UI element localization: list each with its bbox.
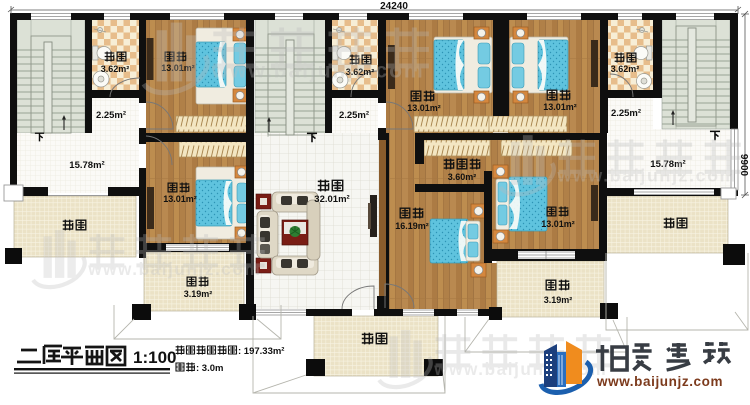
svg-text:3.62m²: 3.62m² [611,64,640,74]
svg-text:15.78m²: 15.78m² [69,160,104,171]
svg-text:3.62m²: 3.62m² [101,64,130,74]
svg-text:3.19m²: 3.19m² [544,295,573,305]
svg-text:24240: 24240 [380,1,408,12]
svg-text:13.01m²: 13.01m² [541,219,575,229]
svg-text:13.01m²: 13.01m² [543,102,577,112]
svg-text:: 197.33m²: : 197.33m² [238,346,284,357]
svg-text:13.01m²: 13.01m² [163,194,197,204]
svg-text:3.60m²: 3.60m² [448,172,477,182]
svg-text:32.01m²: 32.01m² [314,194,349,205]
svg-text:: 3.0m: : 3.0m [196,363,223,374]
svg-text:2.25m²: 2.25m² [339,110,369,121]
svg-text:2.25m²: 2.25m² [96,110,126,121]
svg-text:16.19m²: 16.19m² [395,221,429,231]
svg-text:2.25m²: 2.25m² [611,108,641,119]
svg-text:13.01m²: 13.01m² [407,103,441,113]
svg-text:3.19m²: 3.19m² [184,289,213,299]
svg-text:www.baijunjz.com: www.baijunjz.com [596,374,723,389]
svg-text:1:100: 1:100 [133,348,176,367]
